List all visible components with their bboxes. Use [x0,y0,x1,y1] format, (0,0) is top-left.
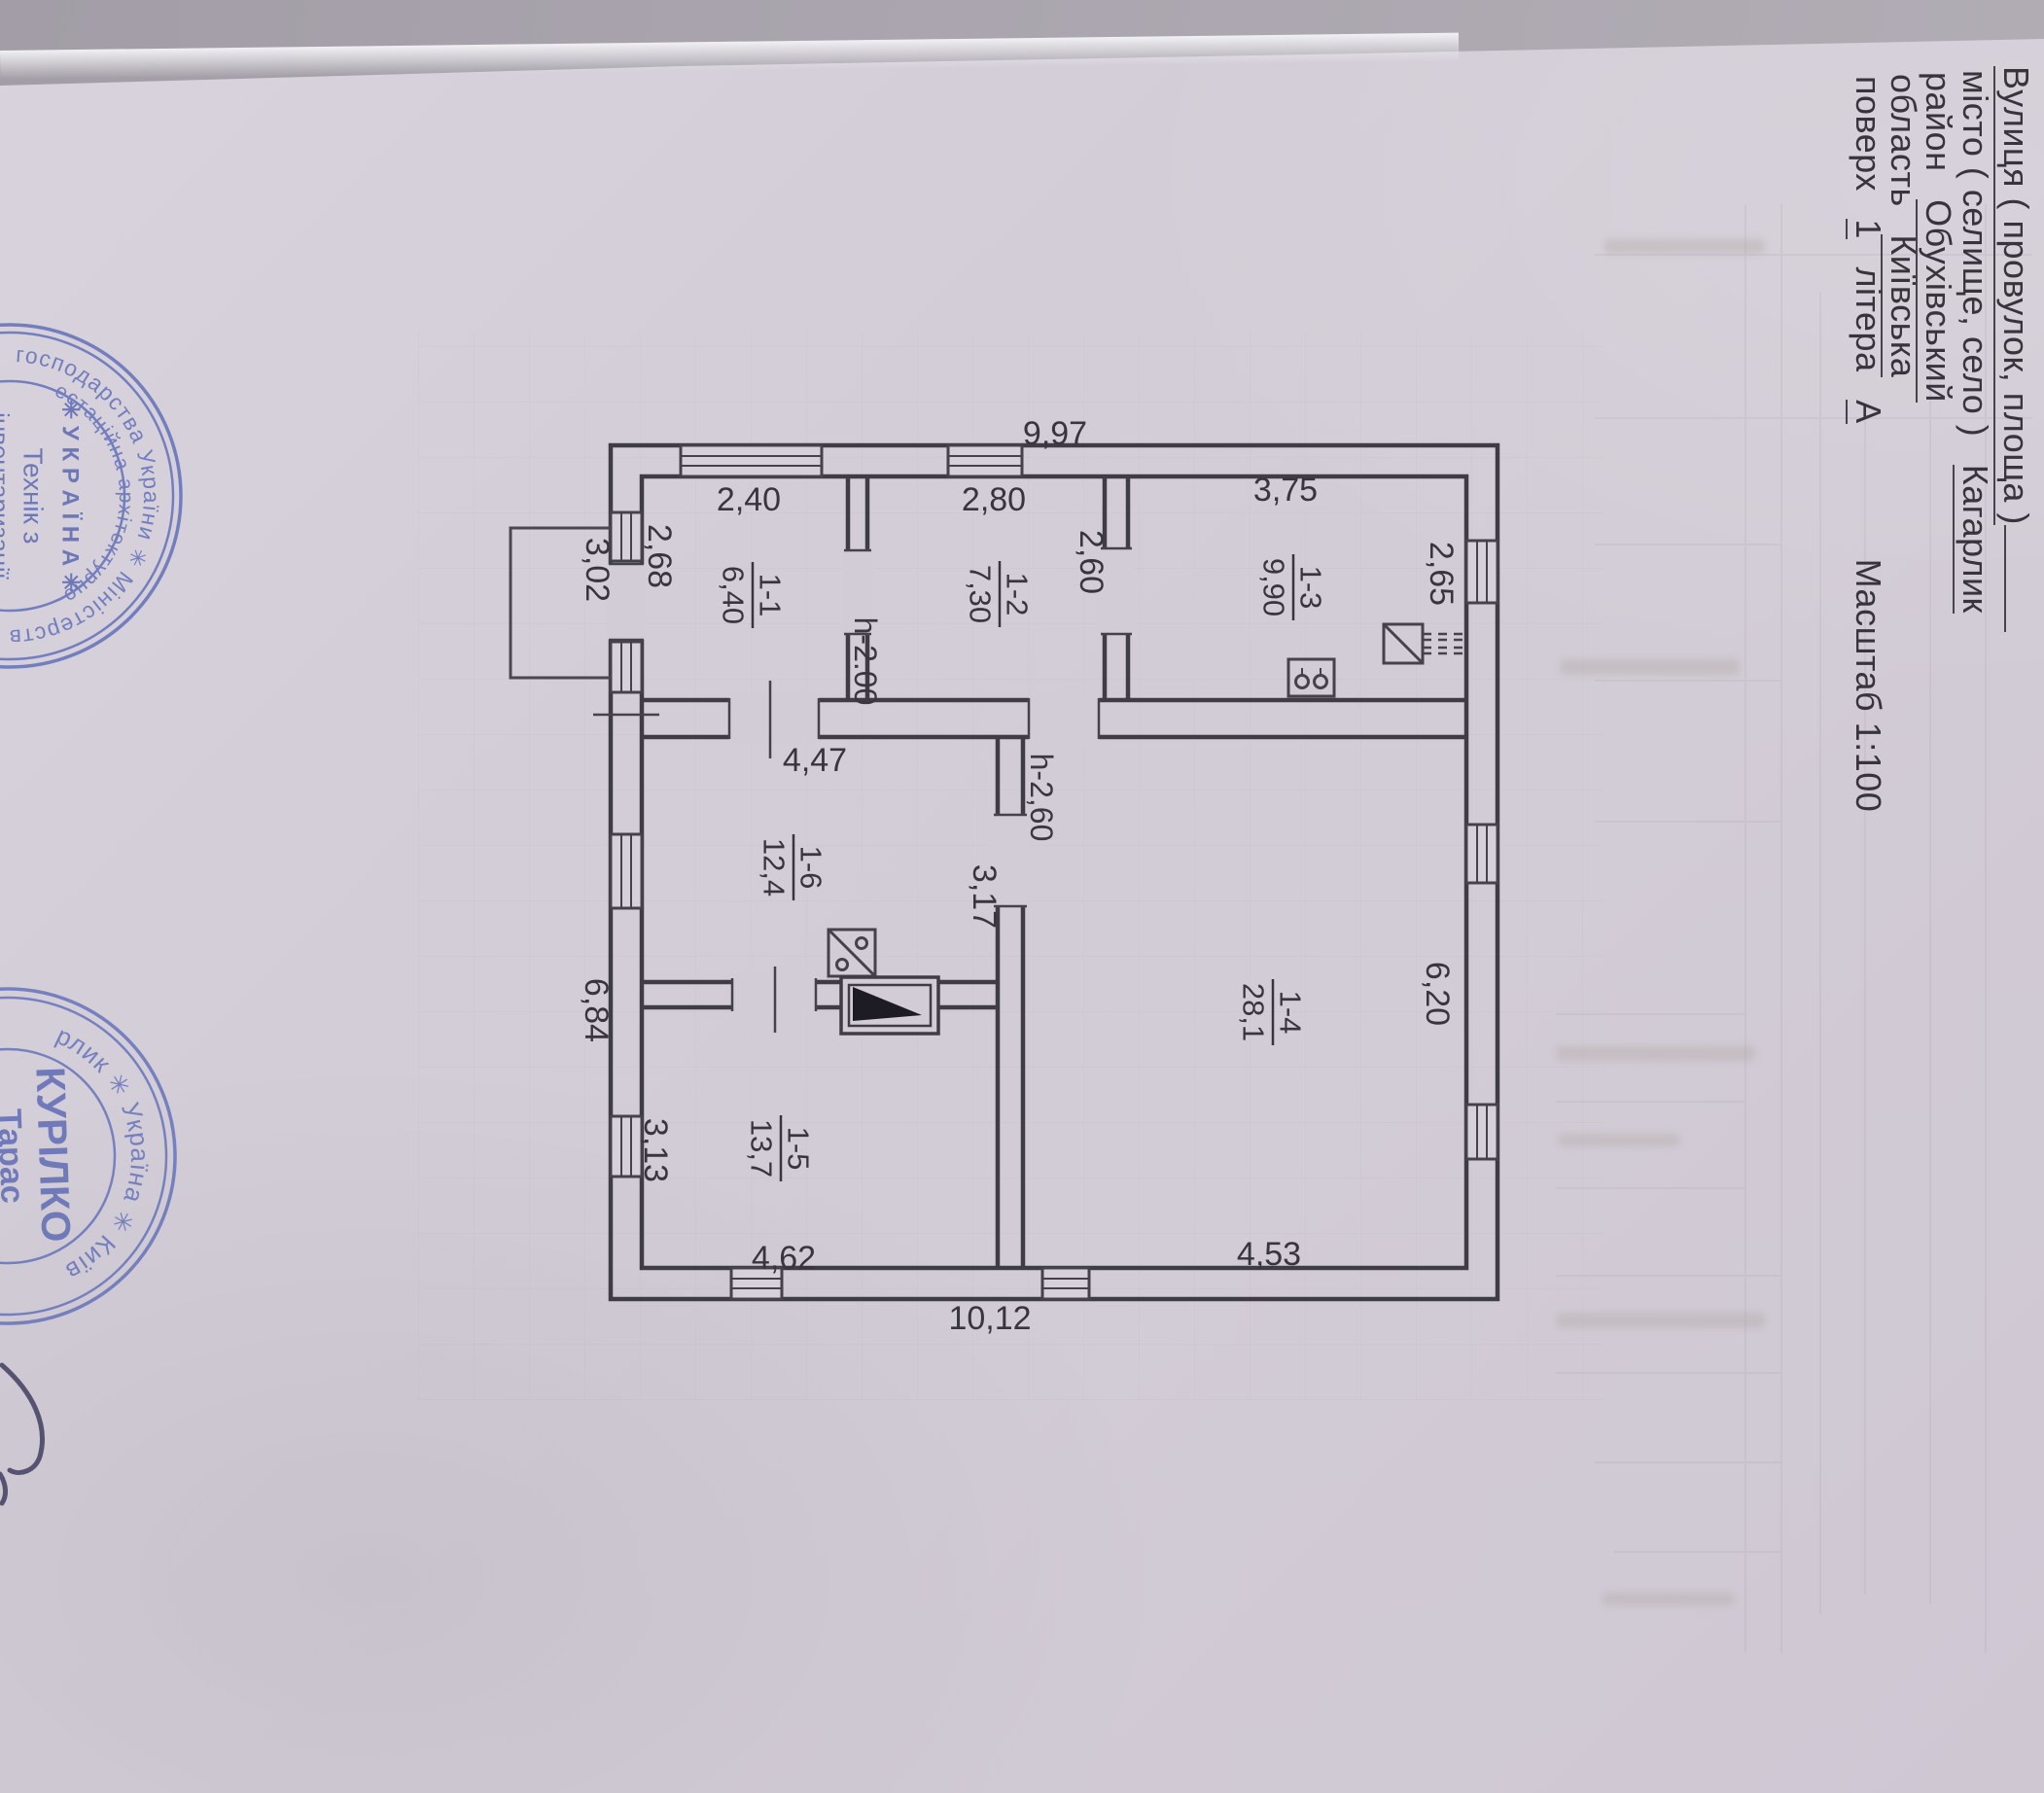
stamp-center-firstname: Тарас [0,1108,31,1205]
stamp-technician: о господарства України ✳ Міністерство ре… [0,325,518,667]
stamp-entrepreneur: рлик ✳ Україна ✳ Київ фізична особа КУРІ… [0,983,181,1329]
photo-of-technical-passport-page: Вулиця ( провулок, площа ) місто ( селищ… [0,0,2044,1793]
stamps-and-pen-marks: о господарства України ✳ Міністерство ре… [0,0,2044,1793]
stamp-center-title: Технік з [18,447,49,544]
stamp-center-surname: КУРІЛКО [27,1066,79,1243]
stamp-center-title: інвентаризації [0,412,15,580]
pen-signature-mark [0,1365,42,1503]
stamp-center-country: ✳ У К Р А Ї Н А ✳ [57,400,84,592]
